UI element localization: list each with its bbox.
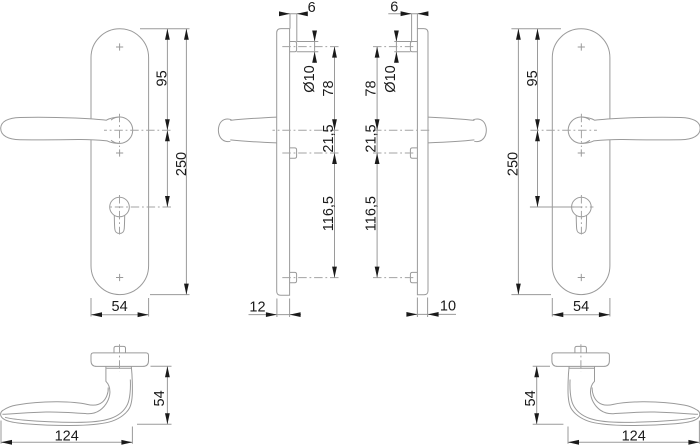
svg-text:250: 250 <box>506 152 522 176</box>
svg-text:95: 95 <box>155 70 171 86</box>
svg-text:Ø10: Ø10 <box>302 65 318 92</box>
svg-text:116,5: 116,5 <box>363 196 379 231</box>
svg-text:21,5: 21,5 <box>321 124 337 152</box>
svg-text:78: 78 <box>363 80 379 96</box>
svg-text:54: 54 <box>573 299 589 315</box>
svg-text:54: 54 <box>112 299 128 315</box>
svg-text:78: 78 <box>321 80 337 96</box>
svg-text:95: 95 <box>525 70 541 86</box>
svg-text:116,5: 116,5 <box>321 196 337 231</box>
svg-text:250: 250 <box>174 152 190 176</box>
svg-text:6: 6 <box>390 0 398 16</box>
svg-text:10: 10 <box>440 299 456 315</box>
svg-text:54: 54 <box>152 390 168 406</box>
svg-text:54: 54 <box>523 390 539 406</box>
svg-text:21,5: 21,5 <box>363 124 379 152</box>
svg-text:124: 124 <box>55 429 79 445</box>
svg-text:124: 124 <box>622 429 646 445</box>
svg-text:12: 12 <box>249 300 265 316</box>
svg-text:6: 6 <box>308 0 316 16</box>
svg-text:Ø10: Ø10 <box>383 65 399 92</box>
